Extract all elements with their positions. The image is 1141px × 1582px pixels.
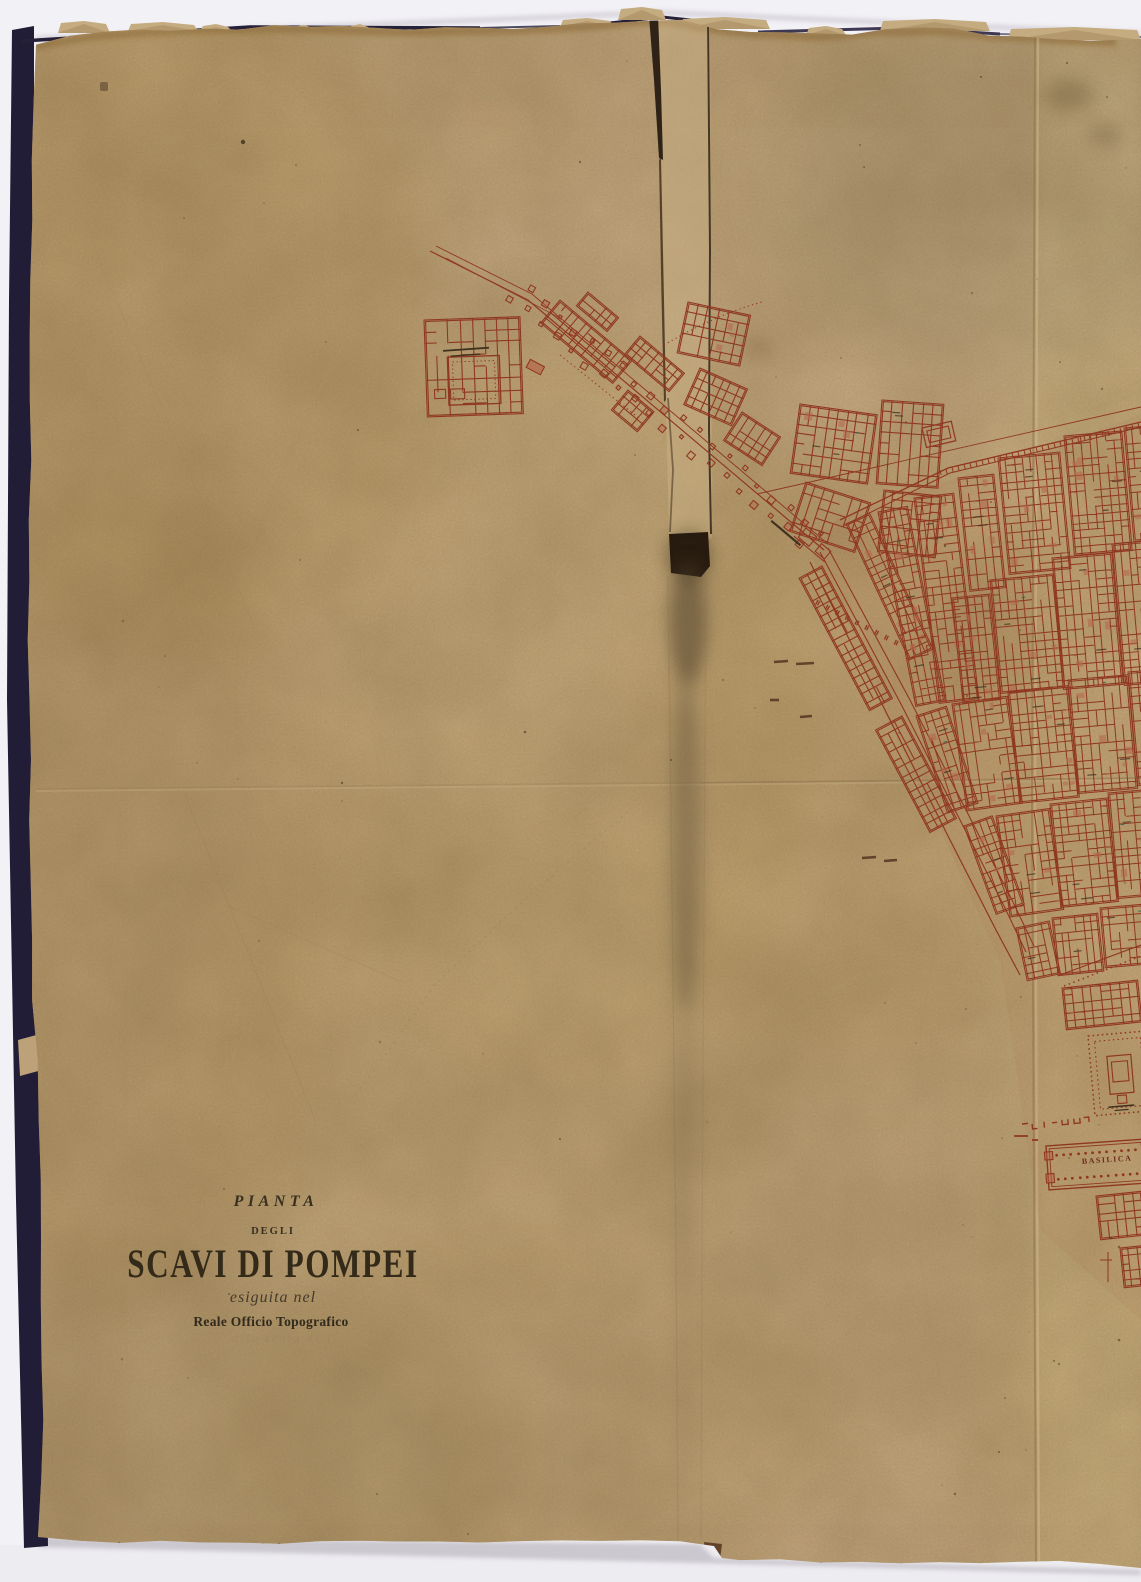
svg-text:esiguita nel: esiguita nel	[230, 1289, 316, 1306]
svg-text:PIANTA: PIANTA	[233, 1193, 319, 1210]
svg-text:Reale Officio Topografico: Reale Officio Topografico	[193, 1314, 348, 1329]
svg-text:SCAVI DI POMPEI: SCAVI DI POMPEI	[127, 1241, 418, 1286]
svg-text:DEGLI: DEGLI	[251, 1226, 295, 1237]
svg-text:alla scala di 1: alla scala di 1	[232, 1331, 333, 1345]
